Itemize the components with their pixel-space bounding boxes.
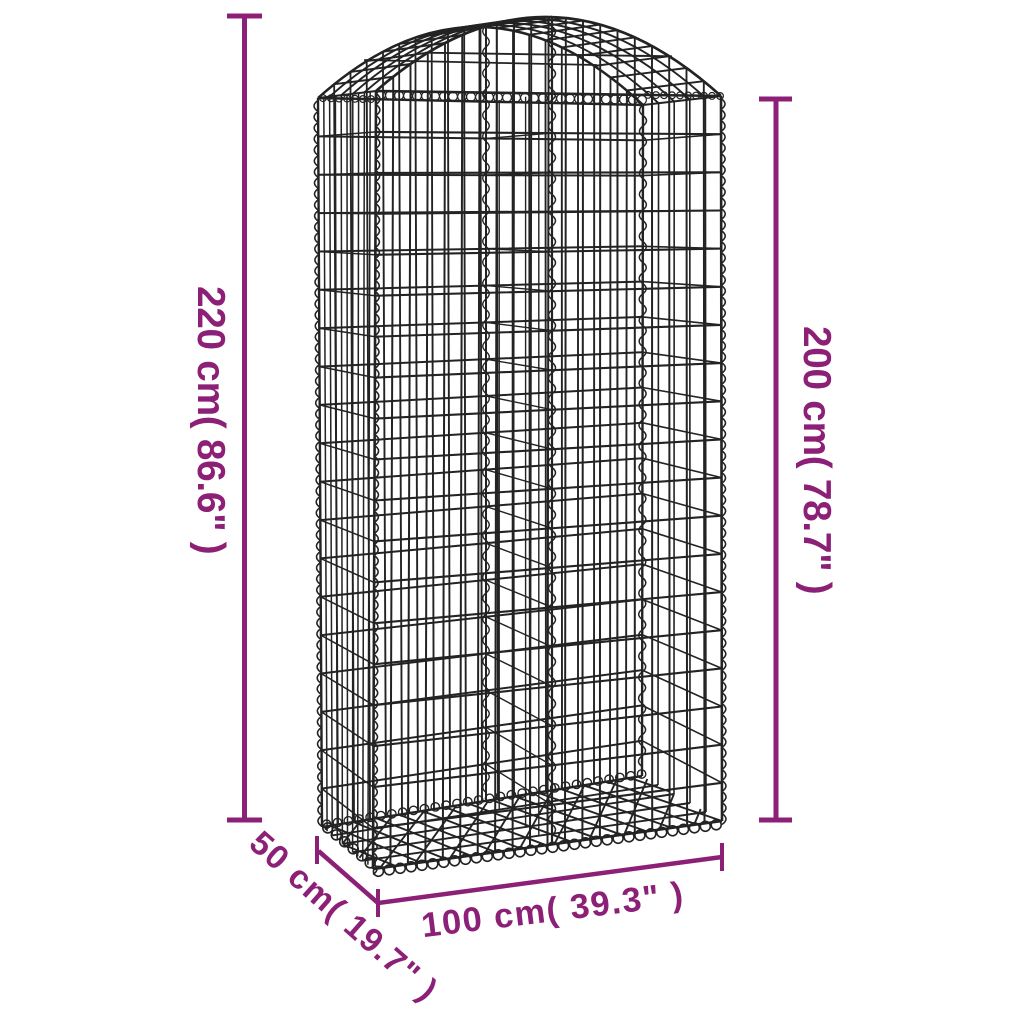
- svg-text:220 cm( 86.6" ): 220 cm( 86.6" ): [189, 286, 232, 554]
- svg-text:200 cm( 78.7" ): 200 cm( 78.7" ): [795, 326, 838, 594]
- svg-text:50 cm( 19.7" ): 50 cm( 19.7" ): [242, 824, 445, 1009]
- svg-text:100 cm( 39.3" ): 100 cm( 39.3" ): [419, 875, 686, 945]
